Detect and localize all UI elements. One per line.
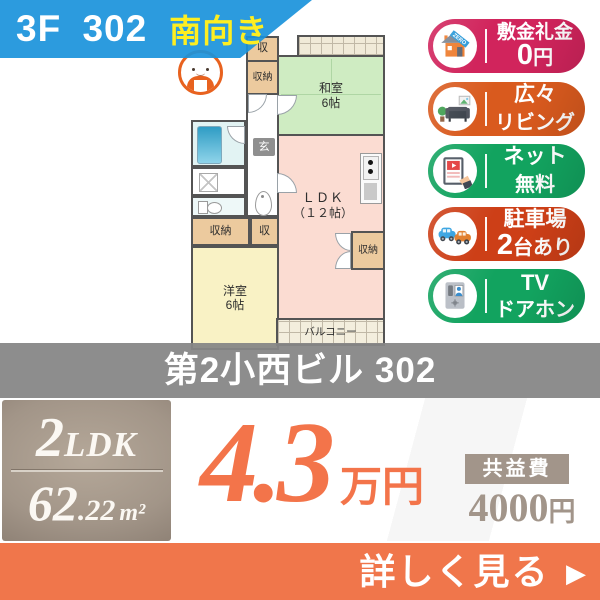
- doorphone-icon: [437, 278, 473, 314]
- badge-icon-circle: [433, 274, 477, 318]
- sink: [364, 183, 377, 200]
- room-yoshitsu-label: 洋室 6帖: [223, 284, 247, 313]
- badge-divider: [485, 279, 487, 313]
- badge-icon-circle: [433, 212, 477, 256]
- kitchen-icon: [360, 153, 382, 204]
- cars-icon: [437, 216, 473, 252]
- burner-dot: [368, 169, 373, 174]
- fee-value: 4000 円: [452, 484, 592, 531]
- facing-direction: 南向き: [169, 6, 268, 52]
- listing-card: 収 収納 和室 6帖 玄 収納 収: [0, 0, 600, 600]
- house-zero-icon: ZERO: [437, 28, 473, 64]
- badge-icon-circle: [433, 87, 477, 131]
- toilet-icon: [207, 202, 222, 214]
- details-button[interactable]: 詳しく見る ▶: [0, 543, 600, 600]
- building-name: 第2小西ビル 302: [0, 343, 600, 398]
- badge-label: 駐車場 2台あり: [493, 209, 585, 258]
- balcony-label: バルコニー: [304, 326, 356, 339]
- badge-no-deposit: ZERO 敷金礼金 0円: [428, 19, 585, 73]
- closet-left: 収納: [191, 217, 250, 246]
- porch: [297, 35, 385, 57]
- closet-label: 収納: [210, 225, 232, 238]
- layout-type: 2LDK: [2, 406, 171, 470]
- badge-icon-circle: [433, 149, 477, 193]
- closet-label: 収納: [358, 245, 378, 257]
- badge-divider: [485, 154, 487, 188]
- toilet-room: [191, 196, 246, 217]
- badge-divider: [485, 92, 487, 126]
- floor-area: 62.22m²: [2, 474, 171, 532]
- unit-number: 3F 302: [16, 8, 147, 50]
- spec-box: 2LDK 62.22m²: [2, 400, 171, 541]
- badge-tv-doorphone: TV ドアホン: [428, 269, 585, 323]
- mascot-bib: [194, 80, 207, 92]
- sofa-icon: [437, 91, 473, 127]
- genkan-label: 玄: [253, 138, 275, 156]
- mascot-eye: [206, 68, 209, 71]
- rent-unit: 万円: [340, 453, 424, 514]
- room-ldk-label: ＬＤＫ （１２帖）: [293, 190, 353, 220]
- fee-label: 共益費: [465, 454, 569, 484]
- closet-mid: 収: [250, 217, 279, 246]
- badge-label: TV ドアホン: [493, 271, 585, 321]
- mascot-smile: [196, 70, 205, 76]
- badge-icon-circle: ZERO: [433, 24, 477, 68]
- badge-divider: [485, 217, 487, 251]
- badge-free-internet: ネット 無料: [428, 144, 585, 198]
- badge-label: ネット 無料: [493, 146, 585, 195]
- closet-right: 収納: [351, 231, 385, 270]
- washbasin-icon: [255, 191, 272, 216]
- badge-spacious-living: 広々 リビング: [428, 82, 585, 136]
- closet-label: 収納: [253, 72, 273, 84]
- stove-panel: [363, 156, 379, 180]
- balcony: バルコニー: [276, 318, 385, 346]
- svg-text:ZERO: ZERO: [451, 32, 467, 47]
- washer-icon: [199, 173, 218, 192]
- arrow-right-icon: ▶: [566, 545, 586, 600]
- spec-divider: [11, 470, 163, 472]
- rent-price: 4.3 万円: [200, 408, 460, 543]
- burner-dot: [368, 160, 373, 165]
- tablet-icon: [437, 153, 473, 189]
- details-button-label: 詳しく見る: [360, 551, 550, 592]
- rent-value: 4.3: [200, 408, 330, 518]
- utility-room: [191, 167, 246, 196]
- closet-label: 収: [259, 225, 270, 238]
- room-yoshitsu: 洋室 6帖: [191, 246, 279, 350]
- closet-label: 収: [257, 42, 268, 55]
- badge-label: 敷金礼金 0円: [493, 23, 585, 70]
- closet-upper: 収納: [246, 60, 279, 95]
- badge-label: 広々 リビング: [493, 84, 585, 133]
- room-washitsu-label: 和室 6帖: [319, 81, 343, 110]
- mascot-eye: [192, 68, 195, 71]
- bathtub-icon: [197, 126, 222, 164]
- badge-divider: [485, 29, 487, 63]
- badge-parking: 駐車場 2台あり: [428, 207, 585, 261]
